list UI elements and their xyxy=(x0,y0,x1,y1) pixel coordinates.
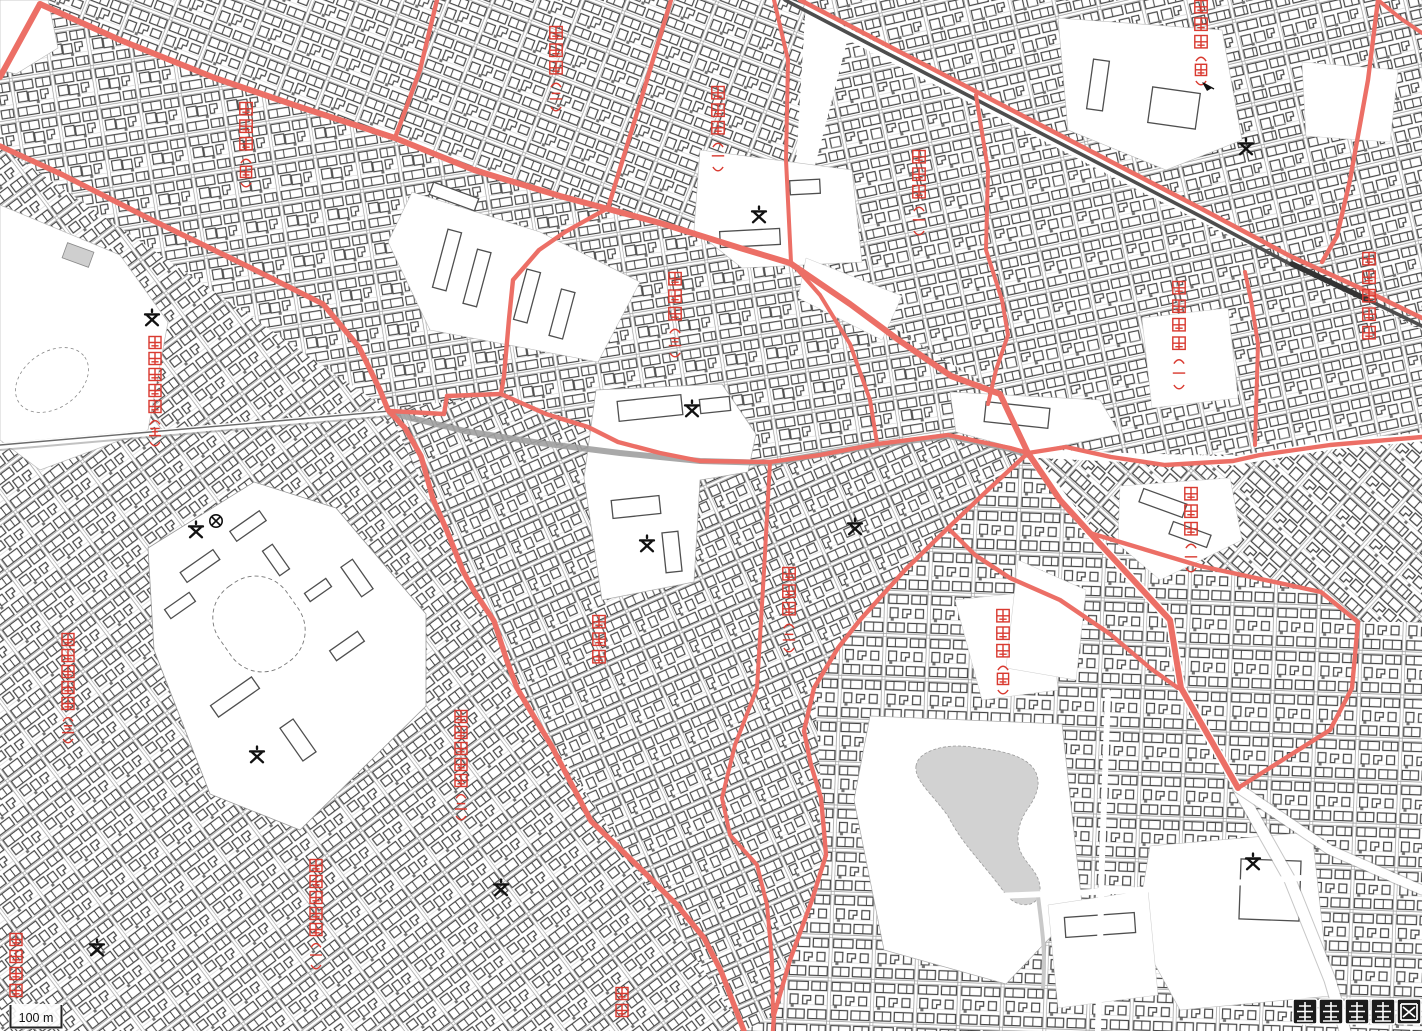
svg-text:100 m: 100 m xyxy=(19,1011,54,1025)
